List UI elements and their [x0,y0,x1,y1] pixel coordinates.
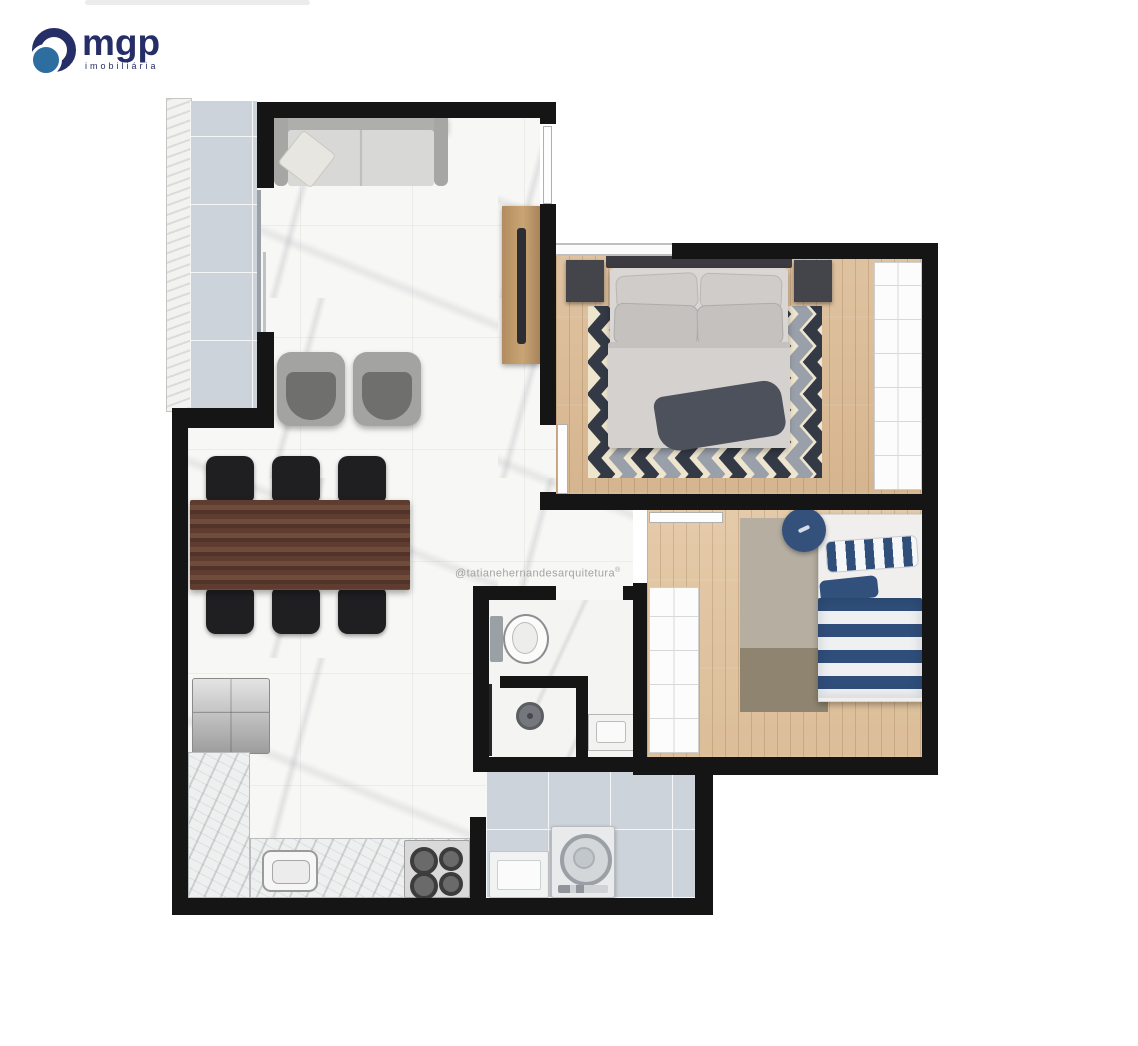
bed-pillow [696,303,783,348]
nightstand-left [566,260,604,302]
master-door-leaf [557,424,568,494]
toilet-bowl-inner [512,622,538,654]
nightstand-right [794,260,832,302]
washing-machine [551,826,615,898]
shower-drain [516,702,544,730]
dining-chair [206,456,254,502]
wall-master-top [672,243,938,259]
bathroom-vanity-sink [588,714,634,751]
round-pouf [782,508,826,552]
bed-pillow [613,303,698,348]
dining-chair [338,588,386,634]
wall-living-right [540,204,556,425]
laundry-tub [489,851,549,898]
bedroom2-wardrobe [649,587,699,753]
kitchen-sink-basin [272,860,310,884]
wall-balcony-right-lower [257,332,274,410]
burner-icon [410,847,438,875]
burner-icon [439,872,463,896]
armchair [277,352,345,426]
kitchen-counter-left [188,752,250,898]
registered-mark: ® [615,567,621,574]
watermark: @tatianehernandesarquitetura® [455,567,621,580]
wall-bedroom2-bottom [633,757,938,775]
cooktop [404,840,470,898]
dining-chair [272,456,320,502]
toilet-tank [490,616,503,662]
wall-master-bottom [540,494,938,510]
entry-door-leaf [543,126,552,204]
armchair [353,352,421,426]
armchair-seat [362,372,412,420]
master-wardrobe [874,262,922,490]
dining-chair [272,588,320,634]
burner-icon [410,872,438,900]
wall-left [172,408,188,915]
wall-bathroom-bottom [473,757,647,772]
dining-table [190,500,410,590]
toilet-icon [503,614,549,664]
balcony-floor [190,101,257,409]
wall-living-top [257,102,556,118]
wall-bathroom-top-right [623,586,647,600]
bedroom2-door-leaf [649,512,723,523]
master-window-wall [556,243,674,256]
wall-entry-jamb [540,102,556,124]
laundry-tub-basin [497,860,541,890]
watermark-text: @tatianehernandesarquitetura [455,568,615,580]
balcony-sliding-door-panel [263,252,266,332]
bedroom2-striped-duvet [818,598,922,698]
washer-control-panel [558,885,608,893]
bedroom2-striped-pillow [825,535,919,573]
wall-bottom [172,898,713,915]
wall-shower-right [576,676,588,768]
floor-plan: @tatianehernandesarquitetura® [0,0,1138,1046]
armchair-seat [286,372,336,420]
wall-bedroom2-left [633,583,647,757]
wall-balcony-right-upper [257,102,274,188]
dining-chair [206,588,254,634]
balcony-ledge [166,98,192,412]
burner-icon [439,847,463,871]
tv-icon [517,228,526,344]
wall-bathroom-left [473,586,489,772]
balcony-sliding-door [257,190,261,332]
wall-bathroom-top [473,586,556,600]
dining-chair [338,456,386,502]
sofa-arm-right [434,114,448,186]
exterior-mask-top-right [556,80,950,243]
vanity-basin [596,721,626,743]
washer-drum [560,834,612,886]
bedroom2-rug-lower [740,648,828,712]
wall-kitchen-laundry [470,817,486,898]
kitchen-sink [262,850,318,892]
wall-shower-top [500,676,588,688]
refrigerator [192,678,270,754]
wall-laundry-right [695,772,713,915]
